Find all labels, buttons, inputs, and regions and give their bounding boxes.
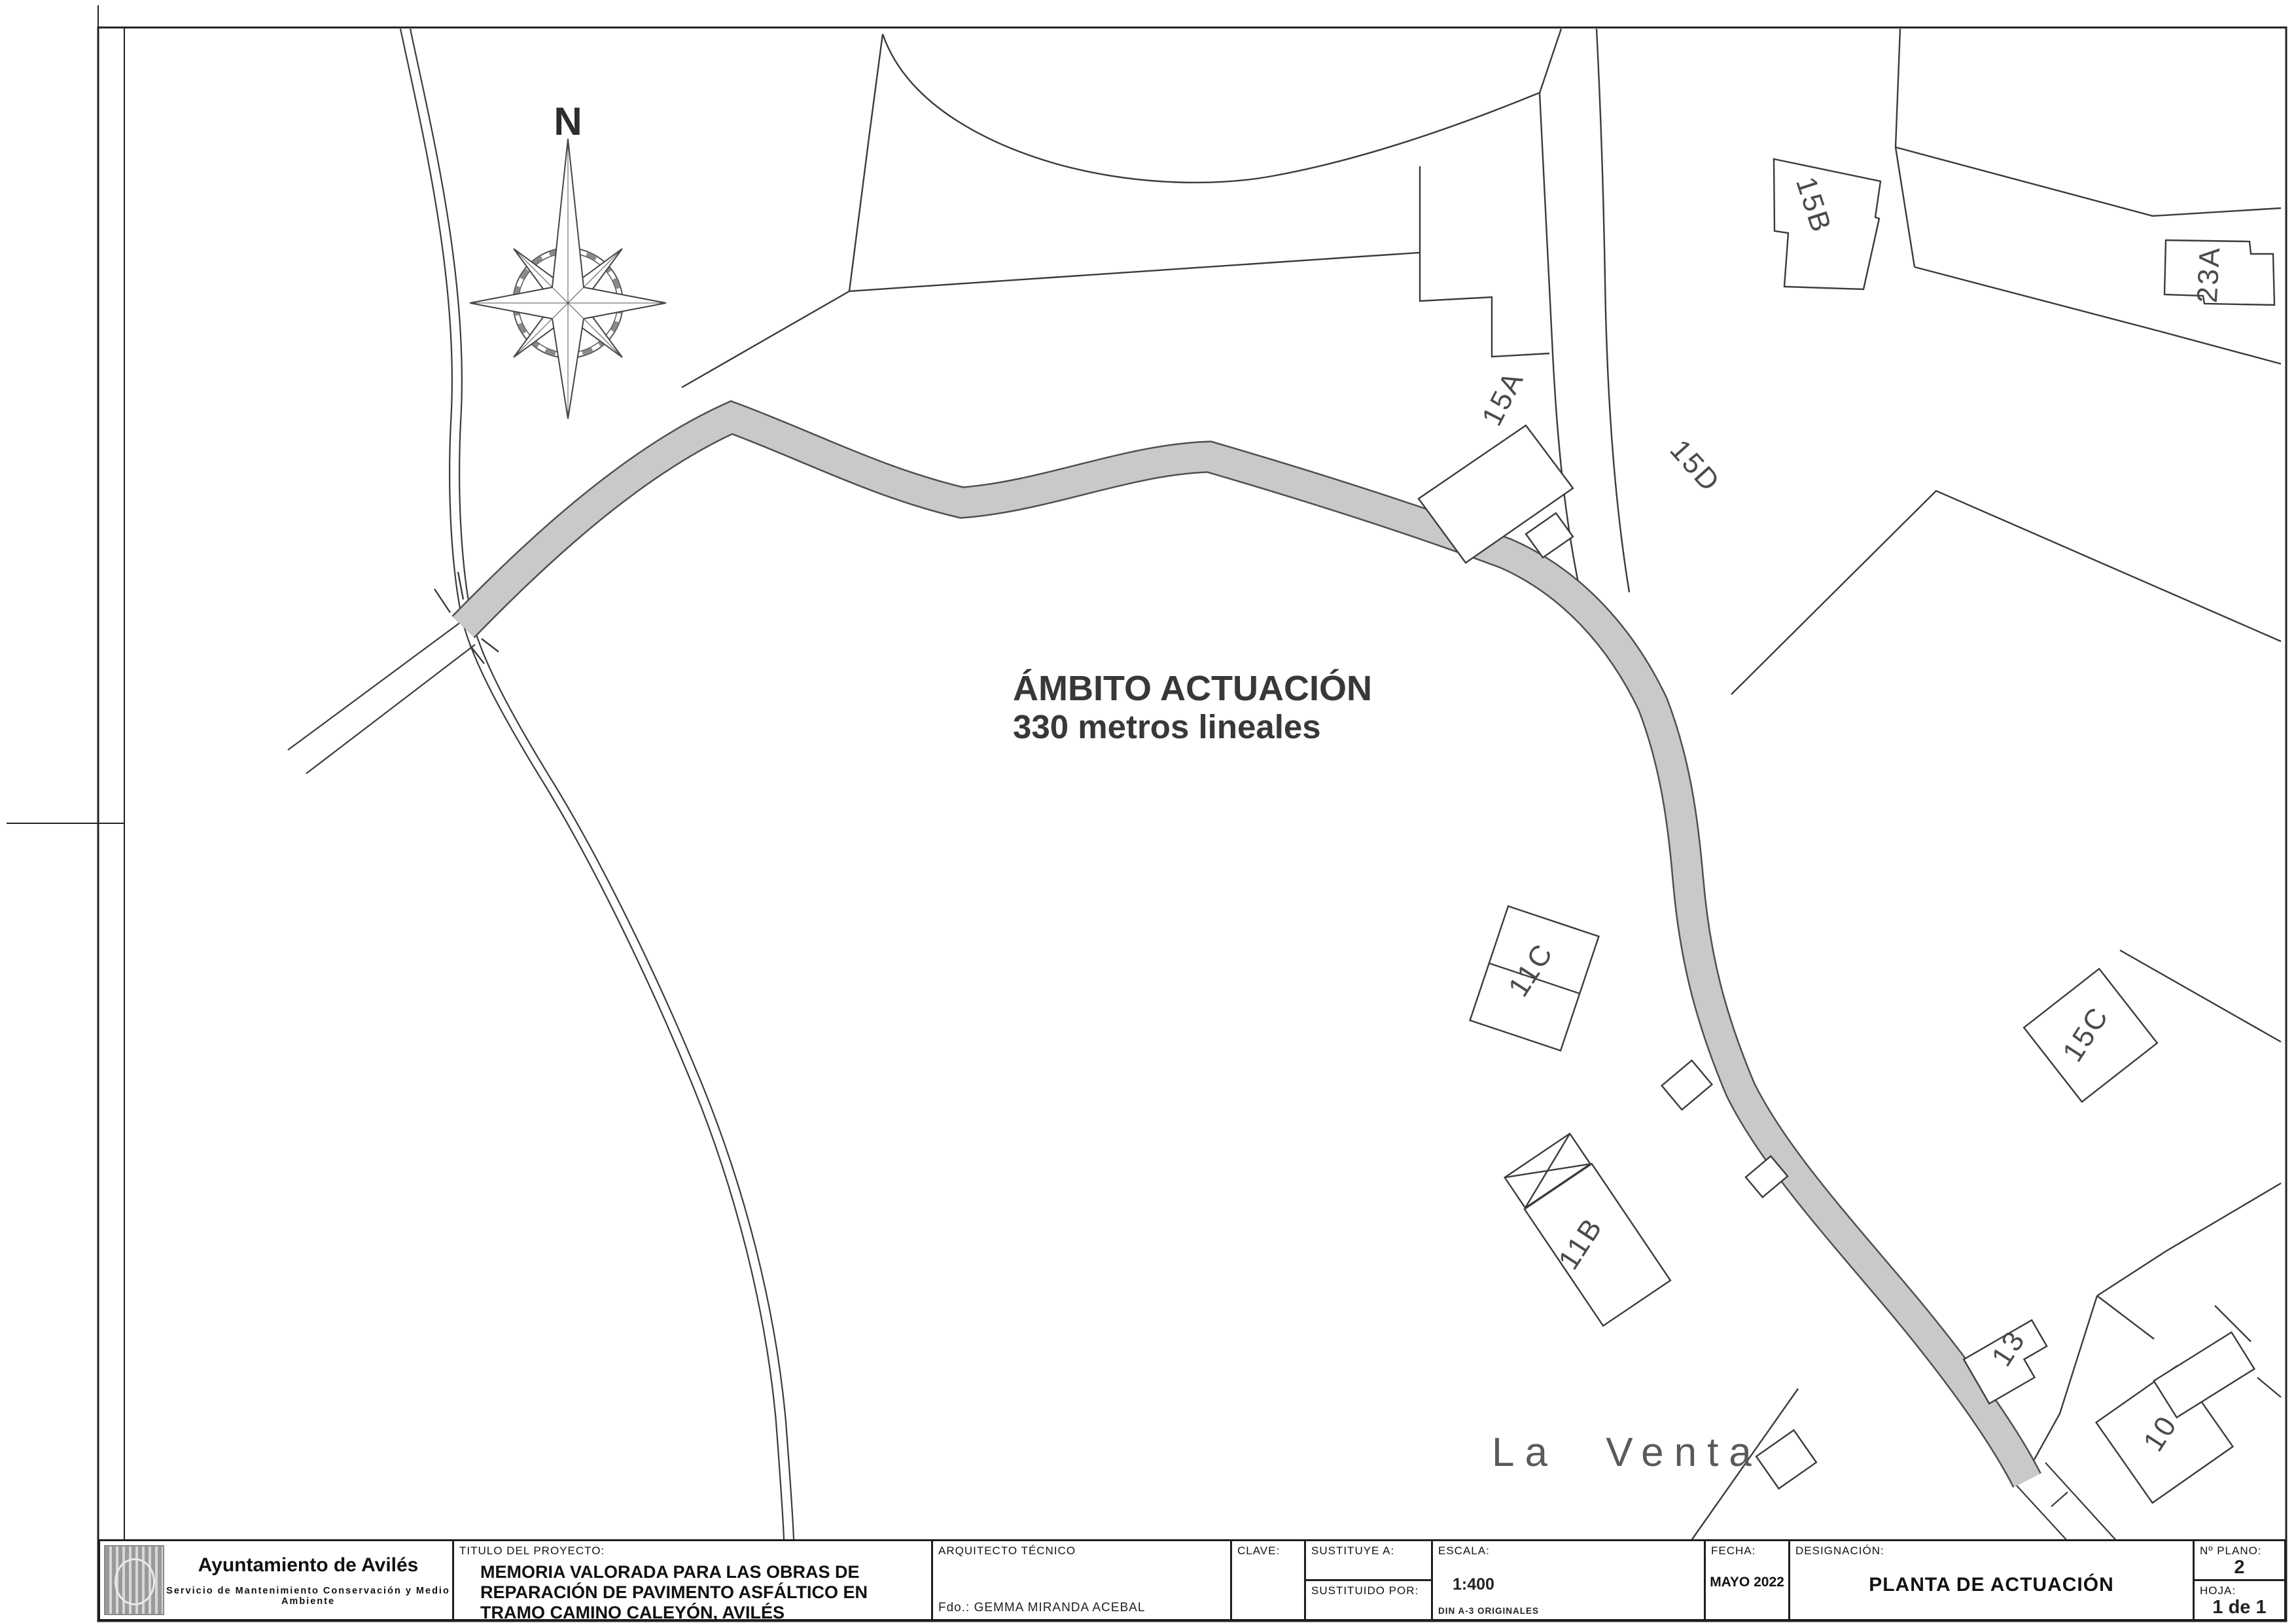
title-block: Ayuntamiento de Avilés Servicio de Mante… bbox=[98, 1539, 2286, 1621]
title-block-project-cell: TITULO DEL PROYECTO: MEMORIA VALORADA PA… bbox=[452, 1541, 931, 1619]
title-block-fecha-cell: FECHA: MAYO 2022 bbox=[1704, 1541, 1788, 1619]
parcel-label-23a: 23A bbox=[2191, 245, 2227, 304]
fecha-value: MAYO 2022 bbox=[1706, 1574, 1788, 1590]
title-block-entity-cell: Ayuntamiento de Avilés Servicio de Mante… bbox=[100, 1541, 452, 1619]
project-label: TITULO DEL PROYECTO: bbox=[454, 1541, 931, 1561]
architect-label: ARQUITECTO TÉCNICO bbox=[933, 1541, 1230, 1561]
parcel-boundaries bbox=[682, 29, 2281, 1552]
sustituido-label: SUSTITUIDO POR: bbox=[1306, 1581, 1431, 1601]
fecha-label: FECHA: bbox=[1706, 1541, 1788, 1561]
project-title: MEMORIA VALORADA PARA LAS OBRAS DE REPAR… bbox=[454, 1561, 931, 1623]
site-plan-drawing: N ÁMBITO ACTUACIÓN 330 metros lineales L… bbox=[0, 0, 2296, 1623]
title-block-designacion-cell: DESIGNACIÓN: PLANTA DE ACTUACIÓN bbox=[1788, 1541, 2193, 1619]
sustituye-label: SUSTITUYE A: bbox=[1306, 1541, 1431, 1561]
escala-value: 1:400 bbox=[1453, 1575, 1494, 1594]
escala-note: DIN A-3 ORIGINALES bbox=[1438, 1606, 1539, 1616]
hoja-value: 1 de 1 bbox=[2195, 1597, 2284, 1618]
road-surface bbox=[463, 418, 2027, 1480]
scope-annotation-line2: 330 metros lineales bbox=[1013, 708, 1321, 745]
plan-sheet: N ÁMBITO ACTUACIÓN 330 metros lineales L… bbox=[0, 0, 2296, 1623]
buildings bbox=[1419, 159, 2274, 1503]
title-block-plano-cell: Nº PLANO: 2 HOJA: 1 de 1 bbox=[2193, 1541, 2284, 1619]
north-label: N bbox=[554, 99, 582, 143]
building-small-on-road-1 bbox=[1662, 1060, 1712, 1109]
plano-value: 2 bbox=[2195, 1557, 2284, 1578]
designacion-value: PLANTA DE ACTUACIÓN bbox=[1790, 1573, 2193, 1596]
title-block-architect-cell: ARQUITECTO TÉCNICO Fdo.: GEMMA MIRANDA A… bbox=[931, 1541, 1230, 1619]
scope-annotation-line1: ÁMBITO ACTUACIÓN bbox=[1013, 669, 1372, 708]
building-la-venta bbox=[1756, 1430, 1816, 1488]
escala-label: ESCALA: bbox=[1433, 1541, 1704, 1561]
road-actuation-band bbox=[463, 418, 2027, 1480]
parcel-label-15d: 15D bbox=[1664, 434, 1727, 499]
entity-department: Servicio de Mantenimiento Conservación y… bbox=[164, 1586, 452, 1607]
place-name-label: La Venta bbox=[1492, 1430, 1762, 1475]
city-crest-logo bbox=[104, 1545, 164, 1615]
southwest-lane bbox=[288, 622, 475, 774]
title-block-escala-cell: ESCALA: 1:400 DIN A-3 ORIGINALES bbox=[1431, 1541, 1704, 1619]
designacion-label: DESIGNACIÓN: bbox=[1790, 1541, 2193, 1561]
stream-path bbox=[400, 29, 794, 1539]
title-block-sustituye-cell: SUSTITUYE A: SUSTITUIDO POR: bbox=[1304, 1541, 1431, 1619]
architect-signature: Fdo.: GEMMA MIRANDA ACEBAL bbox=[938, 1601, 1145, 1615]
title-block-clave-cell: CLAVE: bbox=[1230, 1541, 1304, 1619]
entity-name: Ayuntamiento de Avilés bbox=[164, 1554, 452, 1577]
road-edge-line bbox=[463, 418, 2027, 1480]
compass-rose: N bbox=[470, 99, 666, 419]
parcel-label-15a: 15A bbox=[1475, 365, 1530, 431]
clave-label: CLAVE: bbox=[1232, 1541, 1304, 1561]
